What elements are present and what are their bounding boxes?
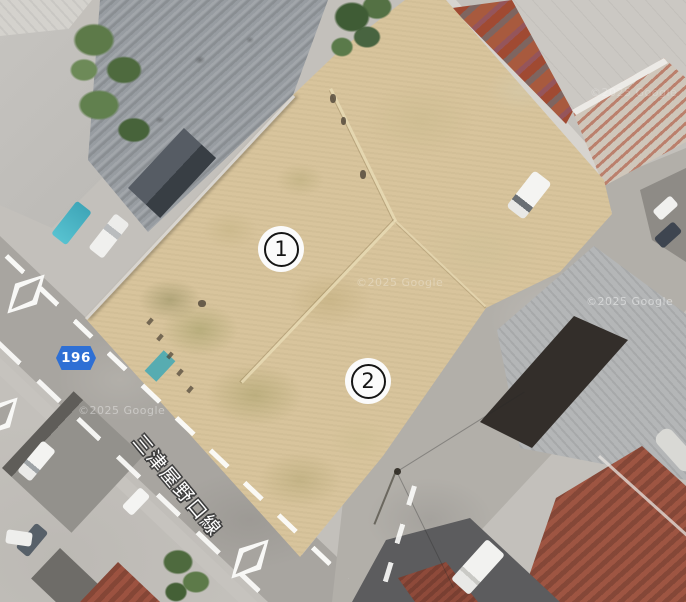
aerial-map-canvas[interactable]: 線 三津屋野口線 196 ©2025 Google ©2025 Google ©… [0,0,686,602]
dark-mark [360,170,366,179]
google-watermark: ©2025 Google [356,276,443,289]
marker-2-label: 2 [351,364,386,399]
trees-north-corner [322,0,412,62]
google-watermark: ©2025 Google [590,86,677,99]
parked-white-car [5,529,33,546]
parcel-marker-1[interactable]: 1 [258,226,304,272]
dark-mark [198,300,206,307]
marker-1-label: 1 [264,232,299,267]
garden-trees [64,10,164,160]
parked-white-car-2 [88,213,129,259]
dark-mark [330,94,336,103]
dark-mark [341,117,346,125]
hedge-shrubs [158,544,216,602]
google-watermark: ©2025 Google [586,295,673,308]
google-watermark: ©2025 Google [78,404,165,417]
parcel-marker-2[interactable]: 2 [345,358,391,404]
route-shield-196: 196 [56,346,96,370]
